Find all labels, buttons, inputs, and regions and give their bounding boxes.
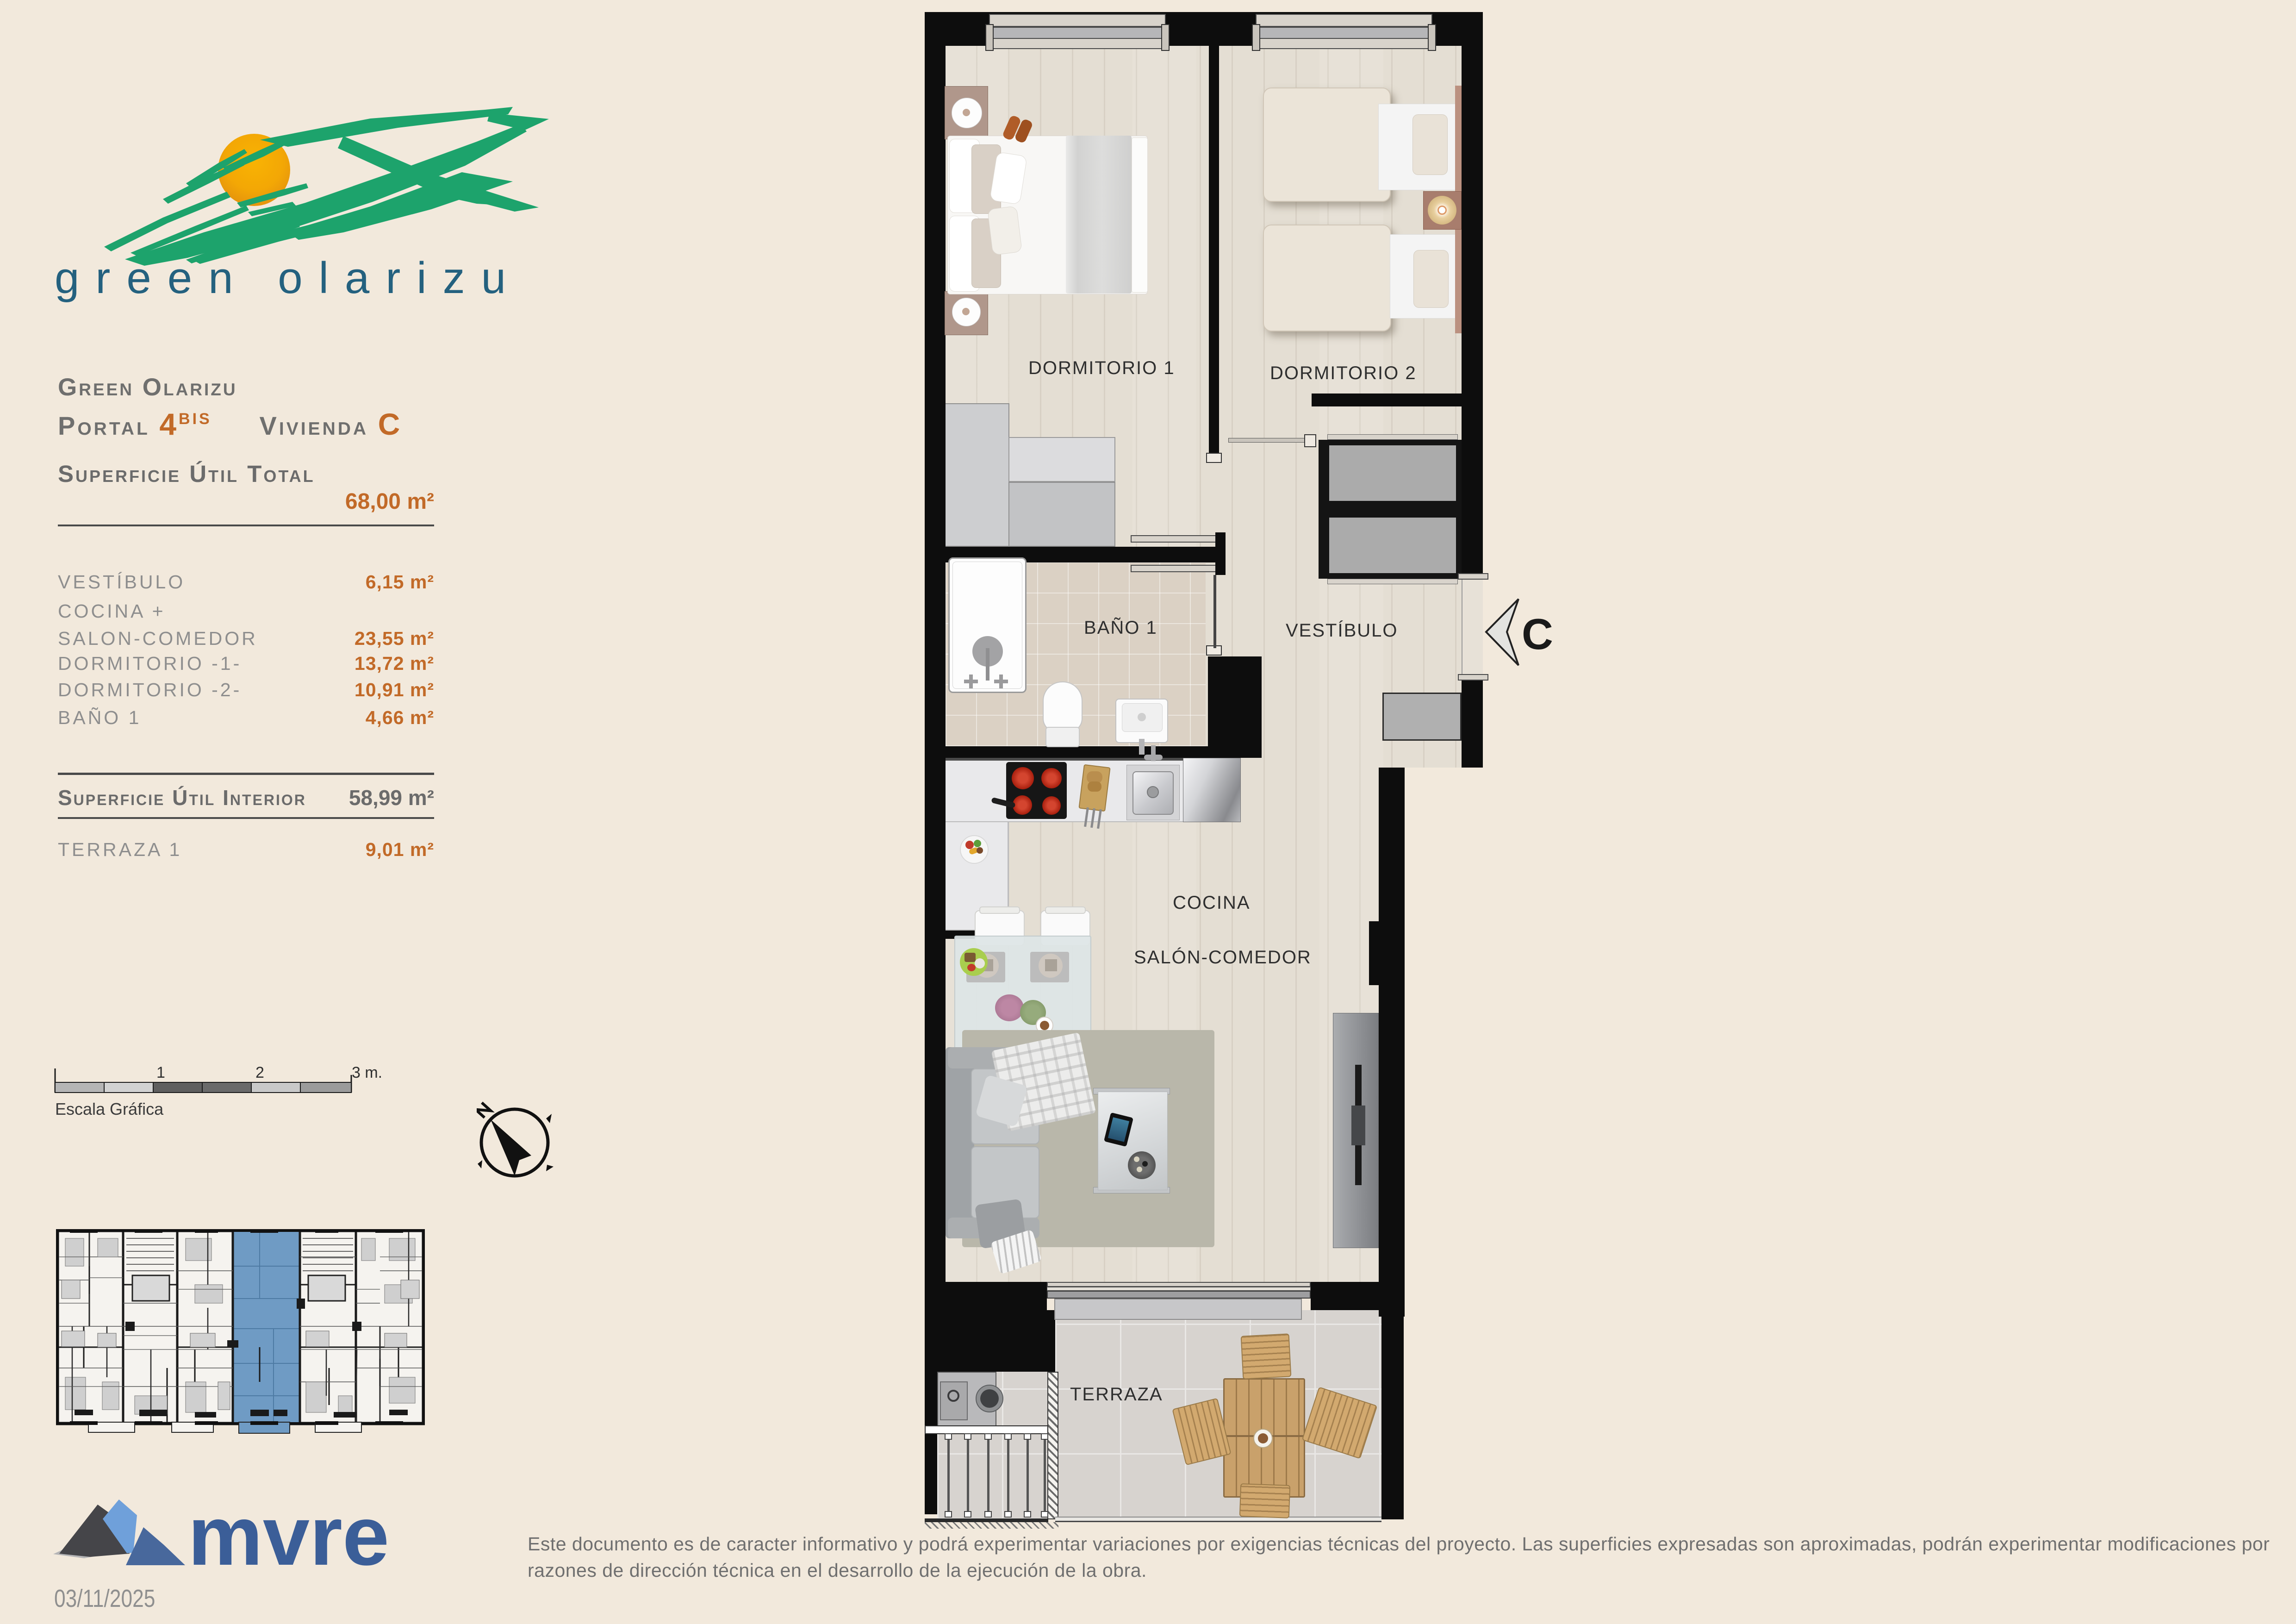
svg-text:3 m.: 3 m. [352,1065,382,1081]
svg-text:mvre: mvre [188,1499,389,1568]
svg-text:1: 1 [156,1065,165,1081]
svg-text:2: 2 [255,1065,264,1081]
